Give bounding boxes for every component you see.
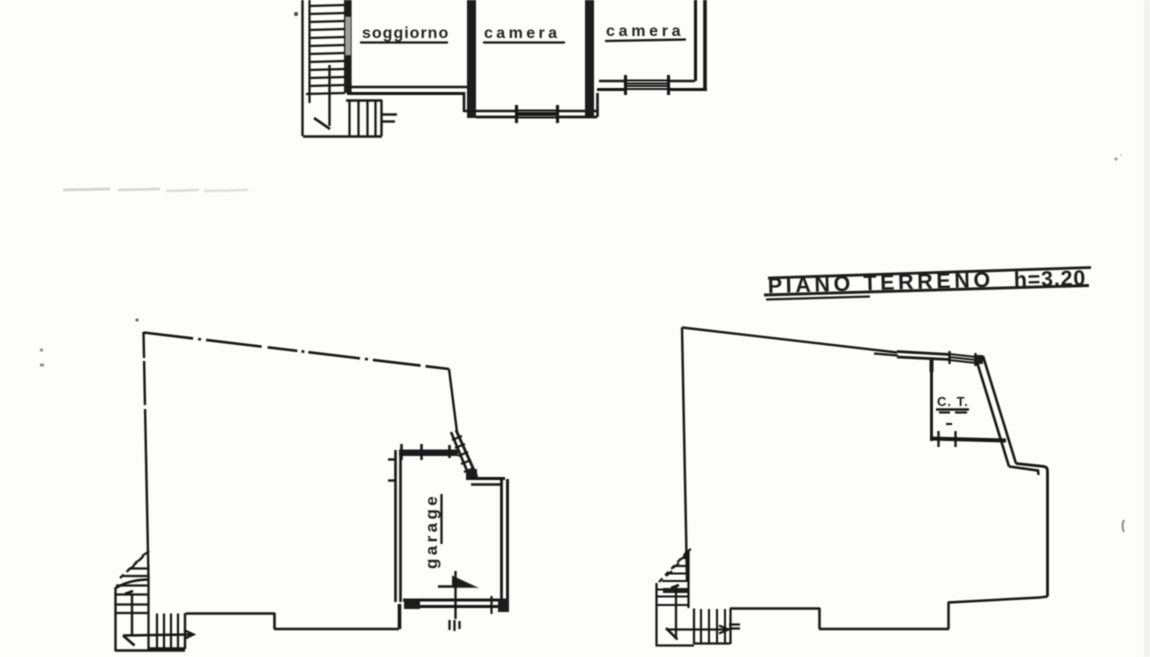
svg-text:soggiorno: soggiorno	[362, 25, 449, 42]
svg-text:C. T.: C. T.	[937, 394, 969, 409]
svg-text:camera: camera	[606, 23, 684, 40]
svg-text:camera: camera	[484, 25, 560, 42]
svg-text:garage: garage	[422, 493, 441, 569]
svg-text:h=3.20: h=3.20	[1013, 266, 1086, 292]
